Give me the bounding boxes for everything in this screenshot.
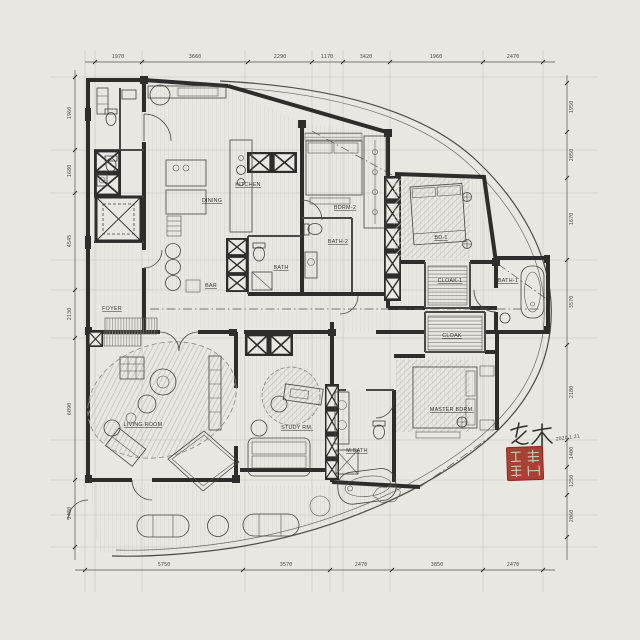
room-label-bath1: BATH-1: [498, 278, 518, 284]
dim-bottom-2: 3570: [280, 562, 293, 568]
red-seal-stamp: [506, 446, 543, 480]
dim-right-3: 1670: [569, 213, 575, 226]
floor-plan-canvas: 1970 3660 2290 1170 3420 1960 2470 5750 …: [0, 0, 640, 640]
dim-bottom-5: 2470: [507, 562, 520, 568]
room-label-bath2: BATH-2: [328, 239, 348, 245]
bd1-carpet: [394, 178, 470, 258]
room-label-mbath: M.BATH: [346, 448, 367, 454]
dim-top-2: 3660: [189, 54, 202, 60]
room-label-living: LIVING ROOM: [124, 422, 163, 428]
master-carpet: [396, 360, 470, 432]
room-label-bar: BAR: [205, 283, 217, 289]
room-label-kitchen: KITCHEN: [235, 182, 260, 188]
dim-right-8: 2060: [569, 510, 575, 523]
dim-bottom-4: 3850: [431, 562, 444, 568]
dim-bottom-3: 2470: [355, 562, 368, 568]
elevator-shaft: [96, 197, 141, 241]
room-label-cloak1: CLOAK-1: [438, 278, 463, 284]
room-label-study: STUDY RM.: [281, 425, 313, 431]
dim-right-5: 2180: [569, 386, 575, 399]
dim-bottom-1: 5750: [158, 562, 171, 568]
dim-left-3: 4545: [67, 235, 73, 248]
dim-left-5: 6090: [67, 403, 73, 416]
room-label-foyer: FOYER: [102, 306, 122, 312]
dim-top-1: 1970: [112, 54, 125, 60]
dim-right-7: 1250: [569, 475, 575, 488]
cloak1-shelving: [428, 266, 467, 305]
dim-left-2: 1680: [67, 165, 73, 178]
dim-top-6: 1960: [430, 54, 443, 60]
room-label-master: MASTER BDRM.: [430, 407, 474, 413]
dim-top-7: 2470: [507, 54, 520, 60]
room-label-bd1: BD-1: [434, 235, 447, 241]
dim-top-4: 1170: [321, 54, 334, 60]
entry-cabinet: [104, 331, 141, 346]
room-label-bdrm2: BDRM-2: [334, 205, 356, 211]
dim-left-1: 1960: [67, 107, 73, 120]
room-label-bath: BATH: [274, 265, 289, 271]
dim-right-2: 2050: [569, 149, 575, 162]
room-label-dining: DINING: [202, 198, 222, 204]
floor-plan-drawing: 1970 3660 2290 1170 3420 1960 2470 5750 …: [0, 0, 640, 640]
dim-right-4: 3570: [569, 296, 575, 309]
bdrm2-headboard: [305, 133, 362, 140]
dim-right-6: 1400: [569, 447, 575, 460]
dim-top-3: 2290: [274, 54, 287, 60]
dim-right-1: 1950: [569, 101, 575, 114]
room-label-cloak: CLOAK: [442, 333, 462, 339]
dim-left-6: 2480: [67, 507, 73, 520]
dim-left-4: 2130: [67, 308, 73, 321]
dim-top-5: 3420: [360, 54, 373, 60]
